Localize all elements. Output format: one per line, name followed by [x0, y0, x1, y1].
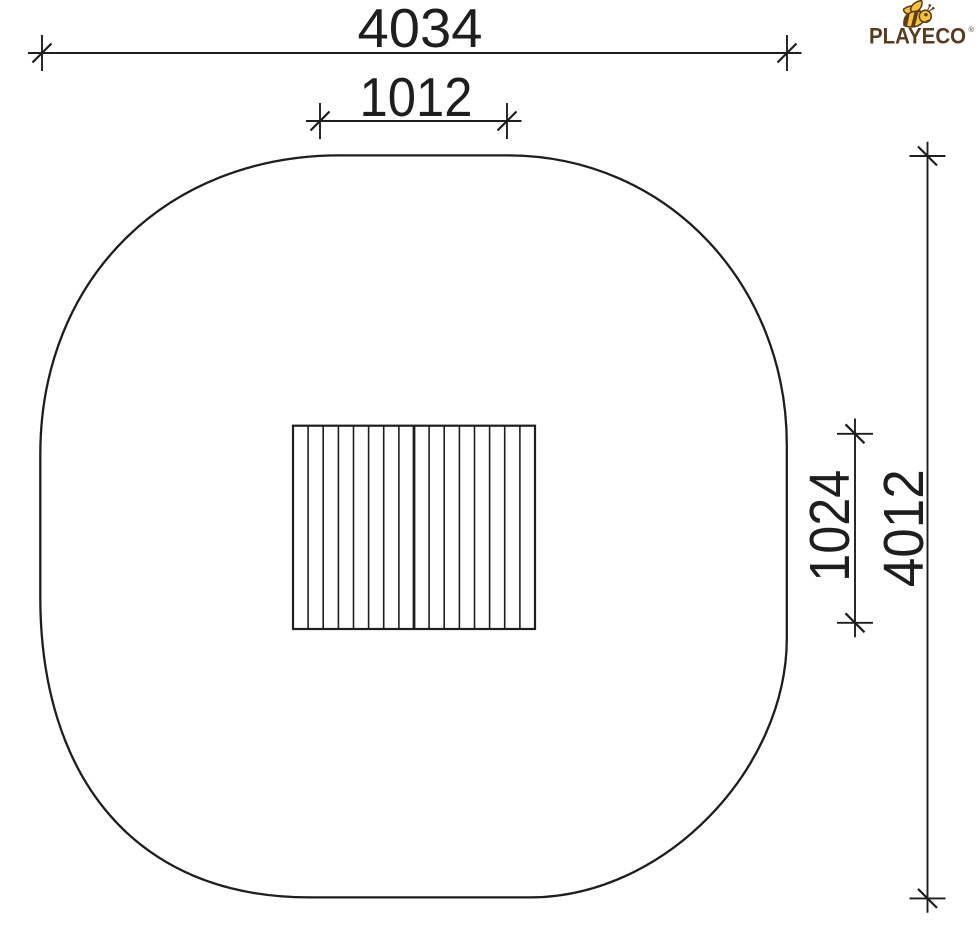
svg-text:4012: 4012 [872, 469, 936, 587]
svg-text:®: ® [969, 25, 975, 34]
svg-text:1012: 1012 [360, 66, 473, 128]
svg-text:4034: 4034 [358, 0, 483, 59]
svg-text:1024: 1024 [798, 470, 862, 582]
svg-text:PLAYECO: PLAYECO [869, 24, 966, 49]
